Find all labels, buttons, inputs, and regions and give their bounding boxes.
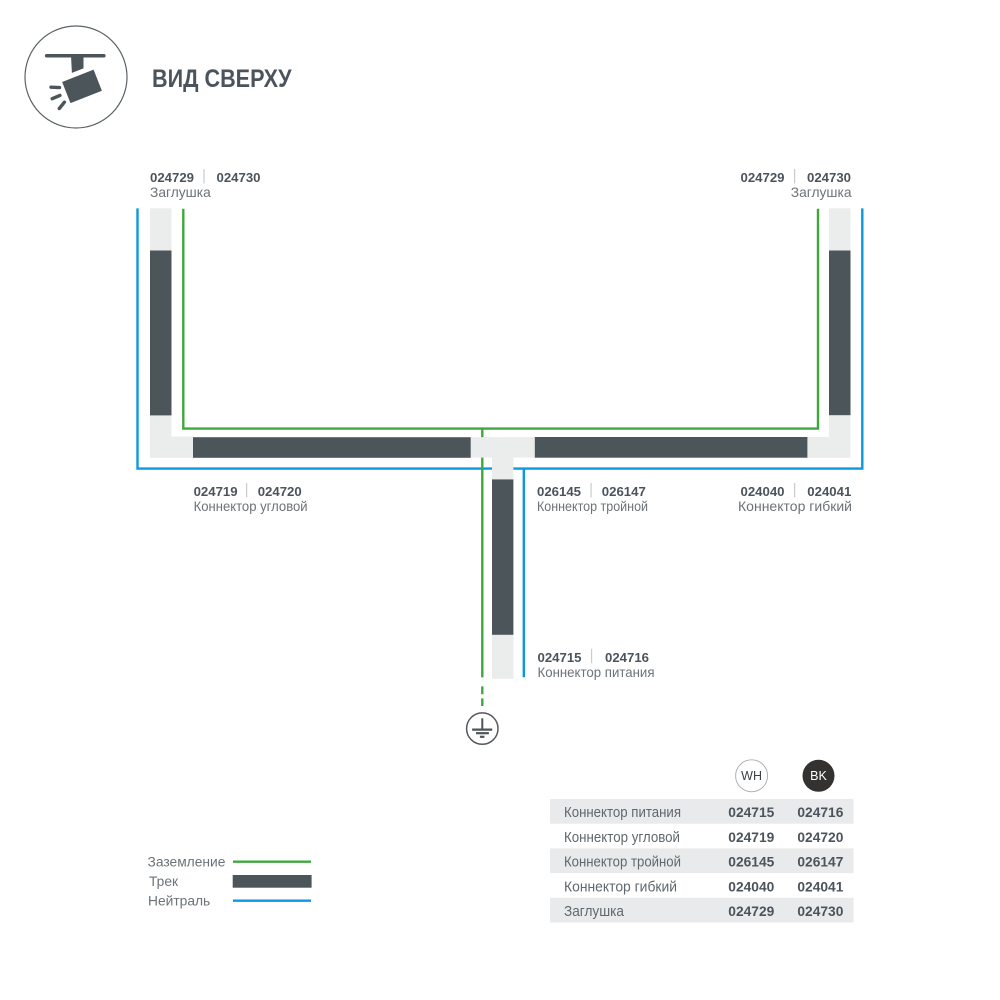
svg-text:Коннектор гибкий: Коннектор гибкий (564, 878, 677, 895)
svg-text:024719: 024719 (728, 829, 774, 845)
svg-text:024719: 024719 (194, 484, 238, 499)
svg-text:026147: 026147 (602, 484, 646, 499)
svg-text:024040: 024040 (728, 878, 774, 894)
svg-text:Заземление: Заземление (148, 855, 226, 870)
svg-text:Коннектор угловой: Коннектор угловой (194, 499, 308, 514)
svg-text:024041: 024041 (797, 878, 843, 894)
svg-text:026145: 026145 (728, 854, 774, 870)
svg-text:ВИД СВЕРХУ: ВИД СВЕРХУ (152, 65, 292, 93)
svg-text:024040: 024040 (740, 484, 784, 499)
svg-text:024041: 024041 (807, 484, 851, 499)
svg-text:Коннектор питания: Коннектор питания (538, 665, 655, 680)
svg-text:024715: 024715 (538, 650, 582, 665)
svg-text:024729: 024729 (728, 903, 774, 919)
svg-text:024729: 024729 (150, 170, 194, 185)
svg-text:Коннектор питания: Коннектор питания (564, 804, 681, 821)
svg-text:024716: 024716 (605, 650, 649, 665)
svg-text:BK: BK (810, 769, 827, 783)
svg-text:026147: 026147 (797, 854, 843, 870)
svg-text:Коннектор тройной: Коннектор тройной (564, 854, 681, 871)
svg-text:Коннектор гибкий: Коннектор гибкий (738, 499, 852, 514)
svg-text:024730: 024730 (217, 170, 261, 185)
svg-text:026145: 026145 (537, 484, 581, 499)
svg-text:Нейтраль: Нейтраль (148, 894, 210, 909)
svg-text:Коннектор тройной: Коннектор тройной (537, 499, 648, 514)
svg-text:024716: 024716 (797, 804, 843, 820)
svg-text:WH: WH (741, 769, 762, 783)
svg-text:024729: 024729 (740, 170, 784, 185)
svg-text:Трек: Трек (149, 874, 179, 889)
svg-text:Коннектор угловой: Коннектор угловой (564, 829, 680, 846)
svg-text:Заглушка: Заглушка (564, 903, 625, 920)
svg-text:024730: 024730 (797, 903, 843, 919)
svg-text:024720: 024720 (797, 829, 843, 845)
svg-text:Заглушка: Заглушка (150, 185, 211, 200)
svg-text:024715: 024715 (728, 804, 774, 820)
svg-text:024730: 024730 (807, 170, 851, 185)
svg-text:Заглушка: Заглушка (791, 185, 852, 200)
svg-text:024720: 024720 (258, 484, 302, 499)
